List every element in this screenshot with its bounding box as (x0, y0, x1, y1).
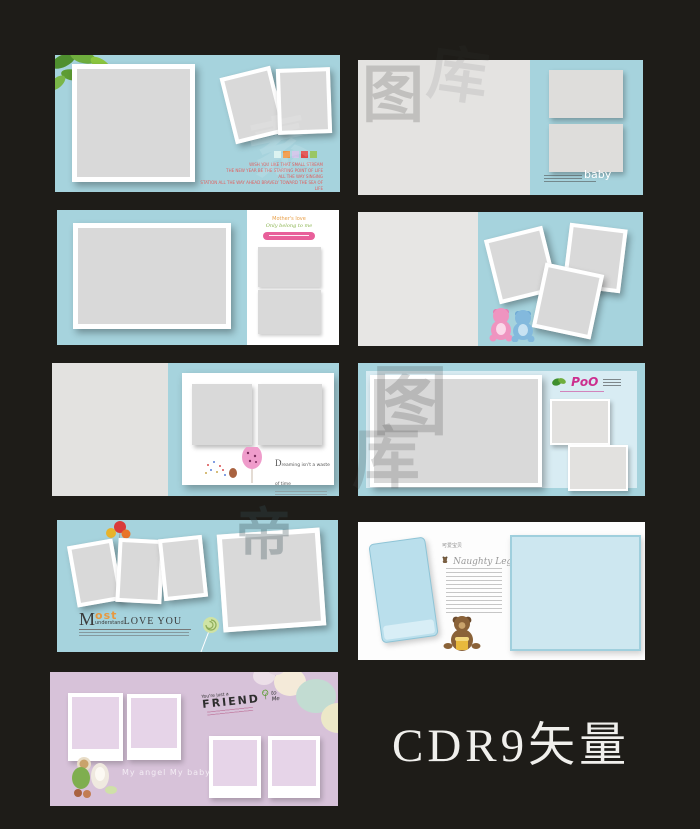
cdr9-caption: CDR9矢量 (392, 706, 692, 775)
swatch (292, 151, 299, 158)
swatch (301, 151, 308, 158)
pink-badge (263, 232, 315, 240)
white-card: Dreaming isn't a waste of time (182, 373, 334, 485)
logo-tagline-lines (560, 391, 604, 394)
most-m: M (79, 610, 95, 628)
badge-text-lines (269, 235, 309, 237)
photo-placeholder (258, 290, 321, 334)
pink-polaroid (68, 693, 123, 761)
photo-placeholder (549, 124, 623, 172)
swatch (310, 151, 317, 158)
cover-photo-area (52, 363, 168, 496)
template-panel-8: 可爱宝贝 Naughty Legs (358, 522, 645, 660)
paragraph-lines (446, 568, 502, 614)
naughty-script-title: Naughty Legs (453, 557, 517, 567)
only-belong-text: Only belong to me (257, 223, 321, 230)
baby-caption: baby (544, 170, 634, 184)
template-panel-4 (358, 212, 643, 346)
polaroid-photo-area (213, 740, 257, 786)
template-panel-6: PoO (358, 363, 645, 496)
photo-placeholder (532, 262, 604, 339)
pink-polaroid (209, 736, 261, 798)
poo-logo-text: PoO (571, 375, 598, 389)
blue-polaroid-frame (368, 537, 438, 644)
blue-photo-area (510, 535, 641, 651)
polaroid-photo-area (272, 740, 316, 786)
mothers-love-header: Mother's love Only belong to me (257, 216, 321, 240)
photo-placeholder (568, 445, 628, 491)
poo-logo: PoO (552, 371, 632, 394)
template-panel-2: baby (358, 60, 643, 195)
template-panel-5: Dreaming isn't a waste of time (52, 363, 339, 496)
polaroid-photo-area (72, 697, 119, 749)
pink-polaroid (268, 736, 320, 798)
leaf-icon (552, 377, 566, 387)
template-panel-3: Mother's love Only belong to me (57, 210, 339, 345)
dreaming-slogan: Dreaming isn't a waste of time (275, 451, 331, 496)
small-bear-icon (442, 556, 448, 563)
teddy-bears-illustration (484, 302, 540, 342)
poem-text: WISH YOU LIKE THAT SMALL STREAM THE NEW … (195, 162, 323, 192)
teddy-bear-honey-illustration (442, 614, 482, 656)
most-understand: understand (95, 621, 124, 626)
polaroid-bottom-strip (383, 619, 435, 640)
photo-placeholder (72, 64, 195, 182)
photo-placeholder (73, 223, 231, 329)
template-panel-7: M ost understand LOVE YOU (57, 520, 338, 652)
cover-photo-area (358, 212, 478, 346)
underline-rule (79, 629, 191, 630)
love-you: LOVE YOU (124, 617, 182, 627)
photo-placeholder (370, 375, 542, 487)
lollipop-swirl-illustration (197, 616, 227, 652)
photo-placeholder (258, 384, 322, 445)
lollipop-tree-illustration (200, 447, 270, 483)
polaroid-photo-area (131, 698, 177, 748)
template-panel-9: You're just a FRIEND to Me My angel My b… (50, 672, 338, 806)
photo-placeholder (115, 538, 164, 604)
photo-placeholder (217, 528, 327, 633)
tiny-caption-lines (544, 175, 582, 179)
template-panel-1: WISH YOU LIKE THAT SMALL STREAM THE NEW … (55, 55, 340, 192)
swatch (274, 151, 281, 158)
baby-label: baby (584, 170, 611, 179)
slogan-rest: reaming isn't a waste of time (275, 463, 330, 487)
photo-placeholder (192, 384, 252, 445)
tiny-caption-lines (79, 632, 189, 638)
mothers-love-text: Mother's love (257, 216, 321, 223)
color-swatch-row (274, 151, 317, 158)
tiny-caption-lines (544, 181, 596, 184)
friend-post-text: to Me (271, 690, 281, 703)
pink-polaroid (127, 694, 181, 760)
tree-icon (261, 685, 270, 704)
toys-illustration (70, 752, 122, 798)
photo-placeholder (276, 67, 332, 135)
photo-placeholder (550, 399, 610, 445)
photo-placeholder (549, 70, 623, 118)
photo-placeholder (158, 535, 208, 601)
tiny-caption-lines (275, 491, 327, 496)
photo-placeholder (258, 247, 321, 287)
my-angel-text: My angel My baby (122, 768, 211, 777)
most-love-you-text: M ost understand LOVE YOU (79, 610, 209, 638)
cover-photo-area (358, 60, 530, 195)
swatch (283, 151, 290, 158)
logo-cn-lines (603, 379, 621, 386)
poem-line: STATION ALL THE WAY AHEAD BRAVELY TOWARD… (195, 180, 323, 192)
